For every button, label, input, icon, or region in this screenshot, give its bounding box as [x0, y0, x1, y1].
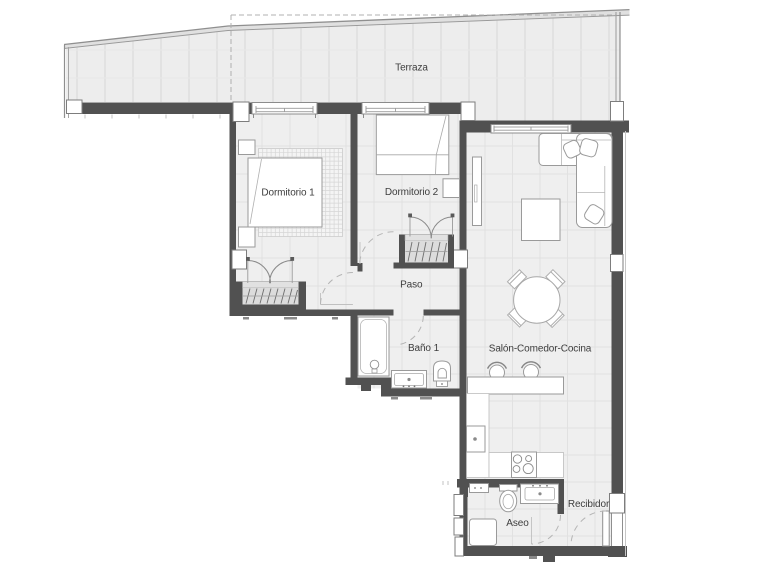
svg-text:Terraza: Terraza — [395, 63, 428, 74]
svg-text:Aseo: Aseo — [506, 518, 529, 529]
svg-text:Dormitorio 1: Dormitorio 1 — [261, 188, 315, 199]
svg-text:Recibidor: Recibidor — [568, 499, 610, 510]
svg-text:Baño 1: Baño 1 — [408, 343, 440, 354]
svg-text:Salón-Comedor-Cocina: Salón-Comedor-Cocina — [489, 343, 592, 354]
svg-text:Paso: Paso — [400, 279, 423, 290]
svg-text:Dormitorio 2: Dormitorio 2 — [385, 187, 439, 198]
